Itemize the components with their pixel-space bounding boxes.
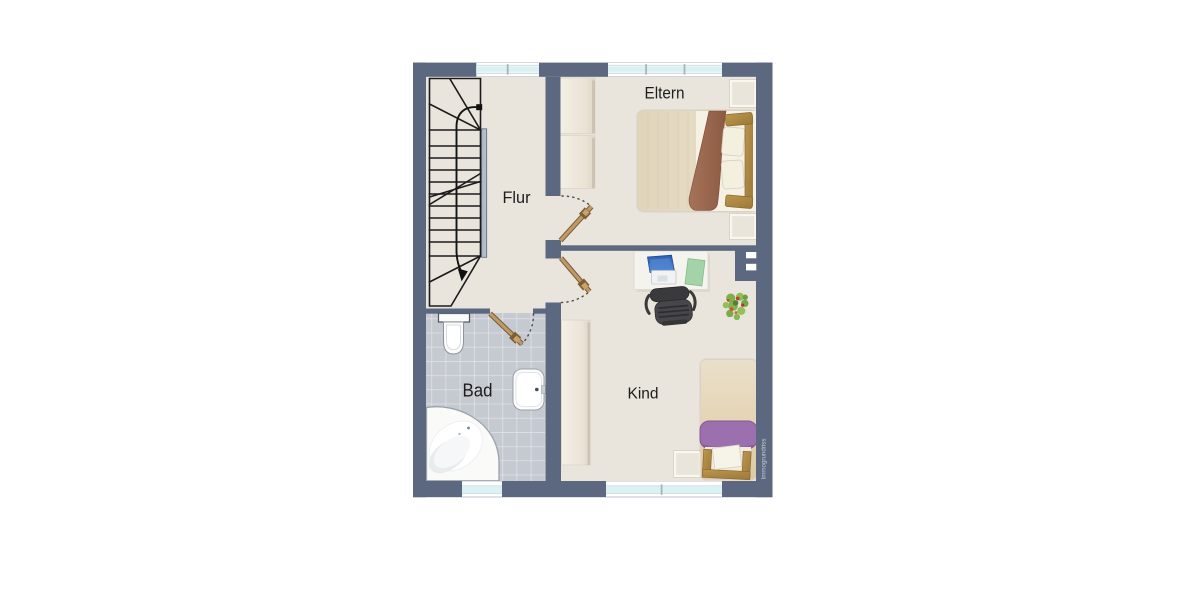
svg-text:Immogrundriss: Immogrundriss (761, 439, 768, 480)
svg-text:Eltern: Eltern (645, 84, 685, 103)
svg-text:Bad: Bad (463, 381, 493, 401)
svg-text:Flur: Flur (503, 189, 531, 207)
svg-text:Kind: Kind (628, 386, 659, 403)
